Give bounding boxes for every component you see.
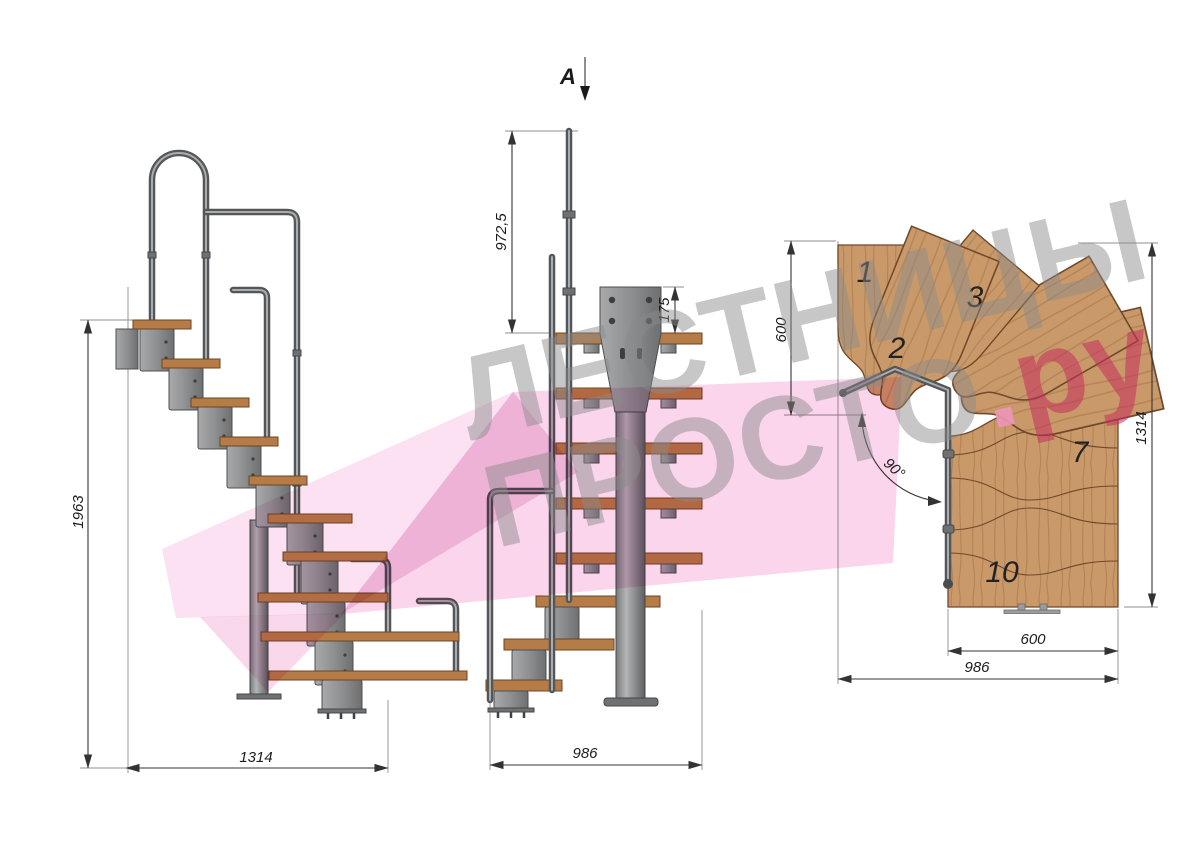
dim-side-height: 1963: [70, 495, 87, 529]
dim-front-width: 986: [572, 745, 598, 762]
plan-tread-7-label: 7: [1072, 436, 1090, 469]
drawing-svg: A: [0, 0, 1200, 849]
plan-tread-1-label: 1: [857, 256, 874, 289]
plan-straight-flight: [948, 412, 1118, 607]
section-marker: A: [559, 57, 590, 101]
plan-tread-10-label: 10: [985, 556, 1019, 589]
dim-plan-top-depth: 600: [773, 317, 790, 343]
section-arrow-icon: [580, 86, 590, 101]
dim-plan-right-height: 1314: [1133, 411, 1150, 444]
dim-side-run: 1314: [239, 749, 272, 766]
dim-plan-overall-width: 986: [964, 659, 990, 676]
dim-front-plate-offset: 175: [656, 297, 673, 323]
staircase-technical-drawing: A: [0, 0, 1200, 849]
dim-plan-bottom-width: 600: [1020, 631, 1046, 648]
plan-tread-3-label: 3: [967, 281, 984, 314]
plan-tread-2-label: 2: [888, 332, 906, 365]
section-label: A: [559, 64, 576, 89]
wall-bracket: [116, 329, 138, 369]
dim-front-rail-height: 972,5: [493, 213, 510, 251]
